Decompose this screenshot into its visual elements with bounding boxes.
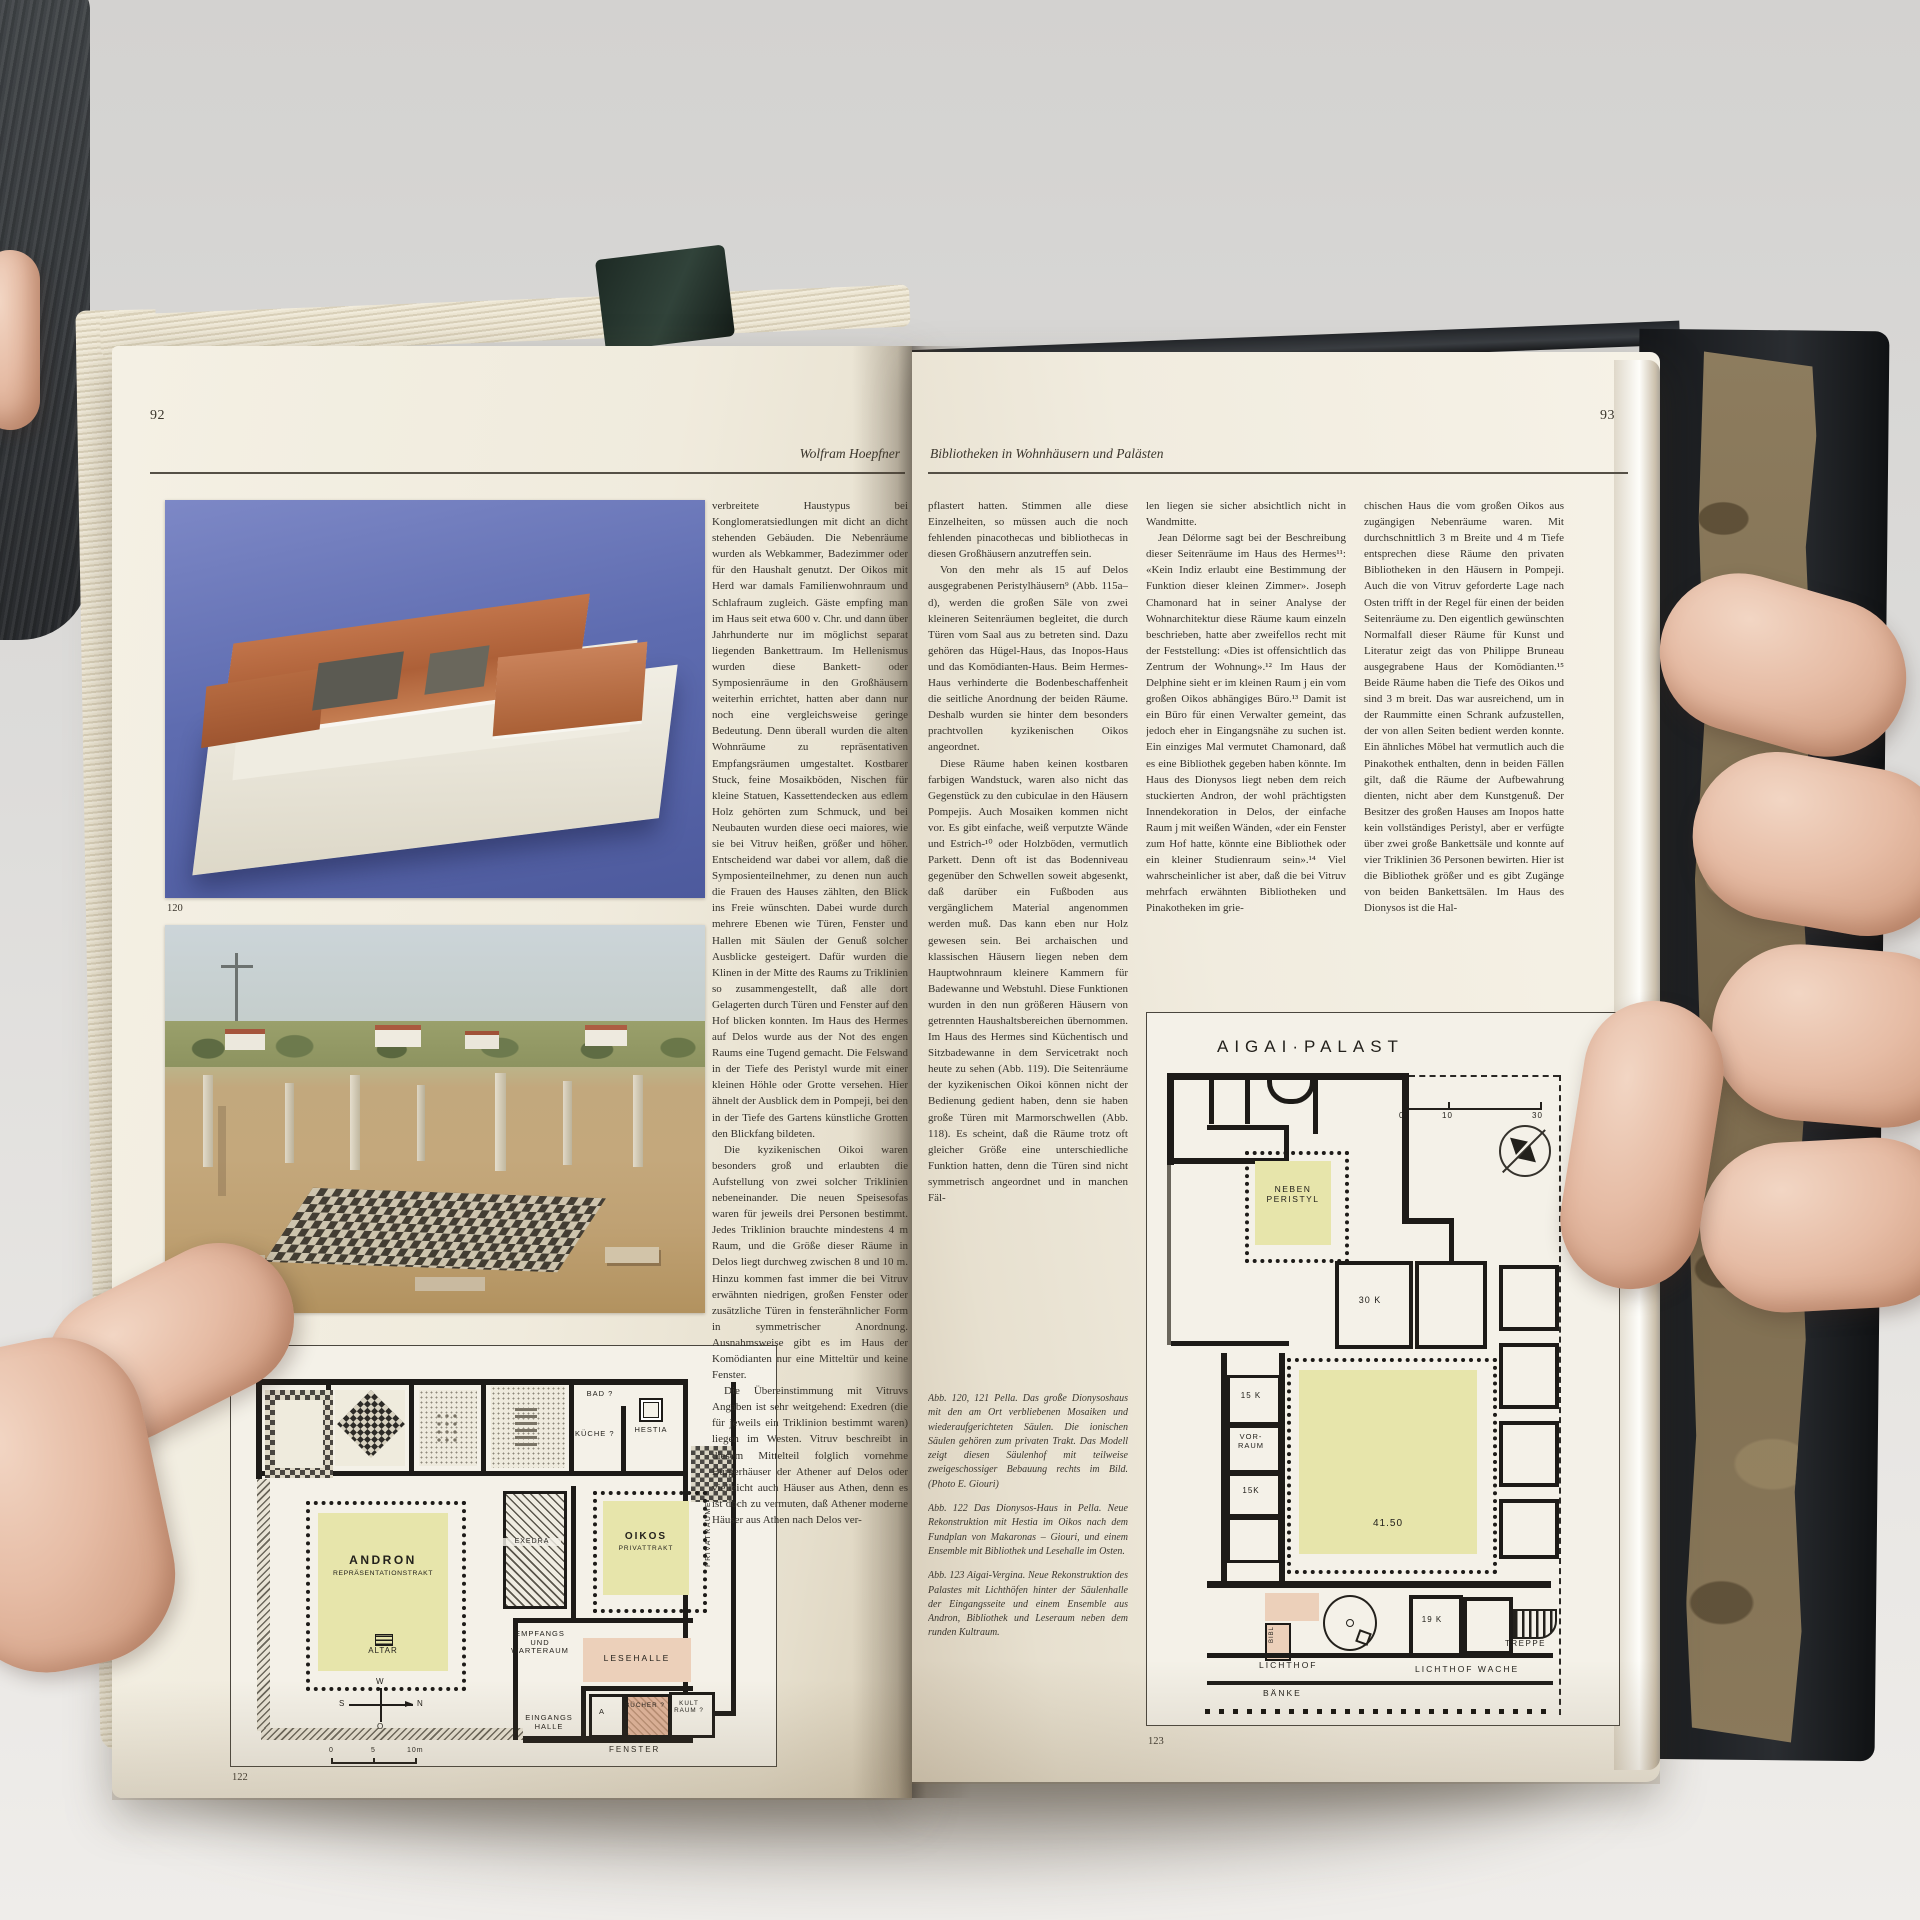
- room-plain-top: [1415, 1261, 1487, 1349]
- wall: [1171, 1341, 1289, 1346]
- village-house-2: [375, 1025, 421, 1047]
- mosaic-room-motif-1: [419, 1390, 477, 1466]
- dashed-boundary-top: [1409, 1075, 1559, 1077]
- fig120-number: 120: [167, 903, 183, 914]
- room-15k-lower-label: 15K: [1227, 1486, 1275, 1495]
- page-number-right: 93: [1600, 408, 1615, 424]
- room-label-bad: BAD ?: [583, 1390, 617, 1399]
- room-right-3: [1499, 1421, 1559, 1487]
- dashed-boundary-right: [1559, 1075, 1561, 1715]
- exedra-room: [503, 1491, 567, 1609]
- compass-rose-123: [1499, 1125, 1551, 1177]
- room-label-hestia: HESTIA: [629, 1426, 673, 1435]
- right-page-column-2: len liegen sie sicher absichtlich nicht …: [1146, 498, 1346, 1003]
- scale123-30: 30: [1532, 1111, 1543, 1120]
- oikos-sublabel: PRIVATTRAKT: [603, 1545, 689, 1552]
- round-kultraum: [1323, 1595, 1377, 1651]
- treppe-label: TREPPE: [1505, 1639, 1546, 1648]
- altar-label: ALTAR: [353, 1646, 413, 1655]
- right-page-column-3: chischen Haus die vom großen Oikos aus z…: [1364, 498, 1564, 1003]
- bibl-label: BIBL: [1269, 1626, 1276, 1643]
- village-house-1: [225, 1029, 265, 1050]
- aigai-palace-plan: AIGAI·PALAST 0 10 30: [1146, 1012, 1620, 1726]
- village-house-4: [585, 1025, 627, 1046]
- column-3: [350, 1075, 360, 1170]
- wall: [569, 1382, 574, 1472]
- caption-122: Abb. 122 Das Dionysos-Haus in Pella. Neu…: [928, 1502, 1128, 1559]
- mosaic-room-motif-2: [491, 1386, 565, 1468]
- wall: [1279, 1353, 1285, 1583]
- wall: [1167, 1165, 1171, 1345]
- altar-icon: [375, 1634, 393, 1646]
- wall: [1245, 1076, 1250, 1124]
- room-30k-label: 30 K: [1335, 1295, 1405, 1305]
- column-6: [563, 1081, 572, 1165]
- room-15k-upper-label: 15 K: [1227, 1391, 1275, 1400]
- andron-sublabel: REPRÄSENTATIONSTRAKT: [311, 1570, 455, 1578]
- empfangs-label: EMPFANGS UND WARTERAUM: [509, 1630, 571, 1656]
- head-rule-right: [928, 472, 1628, 474]
- caption-120-121: Abb. 120, 121 Pella. Das große Dionysosh…: [928, 1392, 1128, 1492]
- exedra-label: EXEDRA: [503, 1538, 561, 1546]
- andron-label: ANDRON: [318, 1554, 448, 1568]
- room-vorraum-label: VOR-RAUM: [1229, 1433, 1273, 1450]
- mosaic-room-tiled: [265, 1390, 333, 1478]
- wall: [409, 1382, 414, 1472]
- room-right-4: [1499, 1499, 1559, 1559]
- model-roof-right-wing: [493, 642, 648, 737]
- paragraph: len liegen sie sicher absichtlich nicht …: [1146, 498, 1346, 530]
- cover-spine-top: [595, 244, 735, 351]
- paragraph: Jean Délorme sagt bei der Beschreibung d…: [1146, 530, 1346, 916]
- ruin-stone-3: [415, 1277, 485, 1291]
- paragraph: chischen Haus die vom großen Oikos aus z…: [1364, 498, 1564, 916]
- wall: [1209, 1076, 1214, 1124]
- left-hand-edge-finger: [0, 250, 40, 430]
- wall: [1402, 1073, 1409, 1223]
- hestia-altar-icon: [639, 1398, 663, 1422]
- ruin-stone-2: [605, 1247, 659, 1263]
- wall: [1313, 1076, 1318, 1134]
- room-19k-label: 19 K: [1409, 1615, 1455, 1624]
- apse-room: [1267, 1079, 1315, 1104]
- wall: [1207, 1125, 1289, 1130]
- paragraph: pflastert hatten. Stimmen alle diese Ein…: [928, 498, 1128, 562]
- left-page-bottom-shade: [112, 1680, 912, 1800]
- room-label-kueche: KÜCHE ?: [575, 1430, 619, 1439]
- head-rule-left: [150, 472, 905, 474]
- wall: [256, 1379, 262, 1479]
- room-blank-left: [1227, 1517, 1281, 1563]
- pylon-arm: [221, 965, 253, 968]
- model-photo: [165, 500, 705, 898]
- wall: [1207, 1653, 1553, 1658]
- mosaic-floor: [264, 1188, 606, 1272]
- paragraph: Diese Räume haben keinen kostbaren farbi…: [928, 756, 1128, 1207]
- aigai-plan-title: AIGAI·PALAST: [1217, 1037, 1404, 1057]
- wall: [1221, 1353, 1227, 1588]
- wall: [1402, 1218, 1454, 1224]
- room-right-2: [1499, 1343, 1559, 1409]
- column-2: [285, 1083, 294, 1163]
- wall: [1167, 1073, 1174, 1165]
- village-house-3: [465, 1031, 499, 1049]
- neben-peristyl-label: NEBEN PERISTYL: [1255, 1185, 1331, 1205]
- bibliothek-room: [1265, 1593, 1319, 1621]
- mosaic-room-diamond: [335, 1390, 405, 1466]
- paragraph: Von den mehr als 15 auf Delos ausgegrabe…: [928, 562, 1128, 755]
- wall: [571, 1486, 576, 1618]
- wall: [256, 1379, 688, 1385]
- right-page-column-1: pflastert hatten. Stimmen alle diese Ein…: [928, 498, 1128, 1333]
- caption-123: Abb. 123 Aigai-Vergina. Neue Rekonstrukt…: [928, 1569, 1128, 1640]
- running-head-right: Bibliotheken in Wohnhäusern und Palästen: [930, 446, 1163, 462]
- column-1: [203, 1075, 213, 1167]
- column-4: [417, 1085, 425, 1161]
- wall: [513, 1618, 693, 1623]
- scale-bar-123: 0 10 30: [1402, 1099, 1542, 1115]
- scale123-10: 10: [1442, 1111, 1453, 1120]
- wall: [481, 1382, 486, 1472]
- page-number-left: 92: [150, 408, 165, 424]
- right-page-bottom-shade: [912, 1660, 1660, 1784]
- column-7: [633, 1075, 643, 1167]
- room-right-1: [1499, 1265, 1559, 1331]
- room-19k: [1409, 1595, 1463, 1657]
- running-head-left: Wolfram Hoepfner: [560, 446, 900, 462]
- photo-of-open-book: 92 Wolfram Hoepfner 120 121: [0, 0, 1920, 1920]
- court-dimension-label: 41.50: [1299, 1518, 1477, 1530]
- lesehalle-label: LESEHALLE: [583, 1654, 691, 1664]
- wall: [621, 1406, 626, 1472]
- stairs-glyph: [1513, 1609, 1557, 1639]
- oikos-label: OIKOS: [603, 1531, 689, 1543]
- wall: [1207, 1581, 1551, 1588]
- column-5: [495, 1073, 506, 1171]
